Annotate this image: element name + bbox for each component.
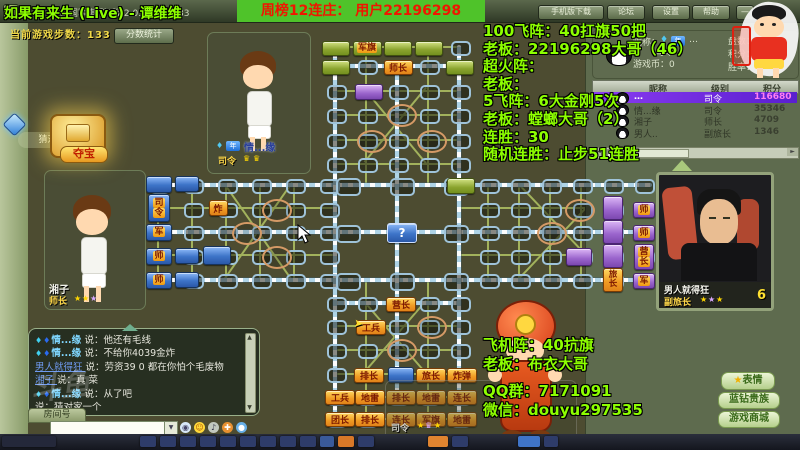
scroll-down-icon[interactable]: ▼ <box>246 404 253 412</box>
taskbar-item[interactable] <box>180 436 196 447</box>
medal-icon: ★ <box>434 421 441 430</box>
stats-line: 老板： <box>483 76 692 94</box>
help-button[interactable]: 帮助 <box>692 5 730 20</box>
game-mall-button[interactable]: 游戏商城 <box>718 411 780 428</box>
stats-line: 老板：22196298大哥（46） <box>483 41 692 59</box>
campsite <box>417 130 447 153</box>
board-station <box>511 250 531 265</box>
board-station <box>480 274 500 289</box>
board-station <box>480 203 500 218</box>
board-station <box>573 179 593 194</box>
gem-icon: ♦ <box>35 336 42 345</box>
medal-icon: ♛ <box>425 421 432 430</box>
board-piece-hidden[interactable] <box>384 41 412 56</box>
left-player-avatar[interactable]: 湘子 师长 ★ ★ ★ <box>44 170 146 310</box>
settings-button[interactable]: 设置 <box>652 5 690 20</box>
gem-icon: ♦ <box>43 349 50 358</box>
scroll-up-icon[interactable]: ▲ <box>246 334 253 342</box>
mobile-download-button[interactable]: 手机版下载 <box>538 5 604 20</box>
chat-message: ♦♦情...缘 说：不给你4039金炸 <box>35 347 245 360</box>
weekly-champion-banner: 周榜12连庄： 用户22196298 <box>237 0 485 22</box>
stats-line: 随机连胜：止步51连胜 <box>483 146 692 164</box>
board-station <box>327 297 347 312</box>
right-player-rank: 副旅长 <box>664 295 691 308</box>
campsite <box>417 316 447 339</box>
board-station <box>420 85 440 100</box>
campsite <box>232 222 262 245</box>
board-piece-师长[interactable]: 师长 <box>384 60 413 75</box>
board-piece-排长[interactable]: 排长 <box>355 412 385 427</box>
board-station <box>389 158 409 173</box>
board-piece-军[interactable]: 军 <box>146 224 172 241</box>
board-station <box>542 274 562 289</box>
medal-icon: ★ <box>90 294 97 303</box>
taskbar-item[interactable] <box>160 436 176 447</box>
board-station <box>218 179 238 194</box>
board-station <box>184 203 204 218</box>
taskbar-item[interactable] <box>140 436 156 447</box>
board-piece-团长[interactable]: 团长 <box>325 412 355 427</box>
gem-icon: ♦ <box>35 349 42 358</box>
douyu-watermark: 斗鱼 <box>28 359 92 409</box>
taskbar-start[interactable] <box>2 436 56 447</box>
streamer-eye-right <box>723 217 730 219</box>
board-station <box>252 179 272 194</box>
promo-line: 老板：布衣大哥 <box>483 355 643 374</box>
stream-stats-overlay: 100飞阵：40扛旗50把 老板：22196298大哥（46） 超火阵： 老板：… <box>483 23 692 164</box>
board-piece-工兵[interactable]: 工兵 <box>325 390 355 405</box>
mascot-emblem <box>515 314 536 335</box>
board-station <box>327 320 347 335</box>
taskbar-item[interactable] <box>200 436 216 447</box>
treasure-button[interactable]: 夺宝 <box>60 146 108 163</box>
board-station <box>444 225 469 243</box>
board-station <box>420 344 440 359</box>
board-piece-地雷[interactable]: 地雷 <box>355 390 385 405</box>
board-piece-hidden[interactable] <box>175 176 199 192</box>
tools-icon[interactable]: ✚ <box>222 422 233 433</box>
avatar-face <box>243 65 273 89</box>
stream-promo-overlay: 飞机阵：40抗旗 老板：布衣大哥 QQ群：7171091 微信：douyu297… <box>483 336 643 420</box>
taskbar-item[interactable] <box>320 436 334 447</box>
history-icon[interactable]: ◉ <box>180 422 191 433</box>
board-piece-旅长[interactable]: 旅长 <box>603 268 623 292</box>
board-station <box>451 297 471 312</box>
board-station <box>327 85 347 100</box>
board-station <box>327 344 347 359</box>
board-piece-hidden[interactable] <box>322 41 350 56</box>
board-station <box>451 41 471 56</box>
mouse-cursor <box>297 224 311 244</box>
taskbar-item[interactable] <box>544 436 558 447</box>
chat-input[interactable] <box>50 421 166 435</box>
board-station <box>480 226 500 241</box>
board-station <box>451 344 471 359</box>
board-piece-hidden[interactable] <box>175 248 199 264</box>
left-player-rank: 师长 <box>49 294 67 307</box>
board-station <box>511 226 531 241</box>
board-piece-师[interactable]: 师 <box>146 248 172 265</box>
sticker-eye <box>760 23 764 26</box>
board-piece-营长[interactable]: 营长 <box>634 244 654 270</box>
board-piece-hidden[interactable] <box>603 220 623 244</box>
board-station <box>184 226 204 241</box>
board-station <box>451 109 471 124</box>
emotion-button-label: 表情 <box>742 375 762 386</box>
taskbar-item[interactable] <box>260 436 276 447</box>
board-station <box>389 320 409 335</box>
board-station <box>420 297 440 312</box>
title-bar: 四国军棋(阵)版 2.0.9 Build033 如果有来生 (Live) - 谭… <box>0 0 800 23</box>
stats-line: 超火阵： <box>483 58 692 76</box>
sticker-eye <box>772 23 776 26</box>
stats-line: 5飞阵：6大金刚5次 <box>483 93 692 111</box>
taskbar-item[interactable] <box>300 436 316 447</box>
board-station <box>511 274 531 289</box>
board-station <box>451 158 471 173</box>
campsite <box>262 199 292 222</box>
taskbar-item[interactable] <box>240 436 256 447</box>
board-piece-hidden[interactable] <box>355 84 383 100</box>
shinchan-sticker <box>730 0 800 80</box>
board-station <box>320 203 340 218</box>
medal-icon: ★ <box>700 295 707 304</box>
gem-icon: ♦ <box>43 336 50 345</box>
taskbar-item[interactable] <box>452 436 468 447</box>
board-piece-炸[interactable]: 炸 <box>209 200 228 216</box>
taskbar-item[interactable] <box>280 436 296 447</box>
chat-message: ♦♦情...缘 说：他还有毛线 <box>35 334 245 347</box>
board-station <box>451 134 471 149</box>
board-station <box>542 179 562 194</box>
score-stats-button[interactable]: 分数统计 <box>114 28 174 44</box>
scroll-right-icon[interactable]: ► <box>787 148 798 156</box>
board-station <box>420 158 440 173</box>
board-piece-hidden[interactable] <box>415 41 443 56</box>
board-station <box>390 178 415 196</box>
board-station <box>480 179 500 194</box>
dart-marker-icon: ➤ <box>353 316 364 330</box>
avatar-face <box>76 209 108 235</box>
red-stamp <box>732 26 751 66</box>
coin-badge: 6 <box>757 288 766 303</box>
webcam-name-strip: 男人就得狂 副旅长 ★ ★ ★ 6 <box>659 282 771 308</box>
medal-icon: ★ <box>82 294 89 303</box>
board-piece-hidden[interactable] <box>446 60 474 75</box>
promo-line: 飞机阵：40抗旗 <box>483 336 643 355</box>
streamer-eye-left <box>709 217 716 219</box>
campsite <box>537 222 567 245</box>
taskbar-item[interactable] <box>518 436 540 447</box>
board-station <box>389 85 409 100</box>
board-piece-军[interactable]: 军 <box>633 273 655 289</box>
board-station <box>604 179 624 194</box>
taskbar-item[interactable] <box>220 436 236 447</box>
board-station <box>451 85 471 100</box>
sticker-leg <box>757 68 763 78</box>
board-station <box>420 109 440 124</box>
chat-scrollbar[interactable]: ▲ ▼ <box>245 333 256 413</box>
board-piece-司令[interactable]: 司令 <box>148 194 170 222</box>
row-rank: 副旅长 <box>704 127 731 140</box>
medal-icon: ★ <box>417 421 424 430</box>
board-station <box>358 109 378 124</box>
campsite <box>387 339 417 362</box>
board-station <box>451 320 471 335</box>
stats-line: 连胜：30 <box>483 129 692 147</box>
medal-icon: ★ <box>74 294 81 303</box>
board-piece-营长[interactable]: 营长 <box>386 297 416 312</box>
board-station <box>336 225 361 243</box>
row-score: 1346 <box>754 127 779 137</box>
board-piece-排长[interactable]: 排长 <box>354 368 384 383</box>
blue-diamond-button[interactable]: 蓝钻贵族 <box>718 392 780 409</box>
board-station <box>389 134 409 149</box>
promo-line: QQ群：7171091 <box>483 382 643 401</box>
top-player-name: 情...缘 <box>244 139 275 154</box>
board-station <box>336 178 361 196</box>
game-window: 司令军师师炸?军旗师长旅长师师营长军营长工兵排长旅长炸弹工兵地雷排长地雷连长团长… <box>0 0 800 450</box>
stream-title-overlay: 如果有来生 (Live) - 谭维维 <box>4 3 182 23</box>
board-piece-hidden[interactable] <box>603 244 623 268</box>
board-piece-师[interactable]: 师 <box>146 272 172 289</box>
board-piece-hidden[interactable] <box>175 272 199 288</box>
top-player-rank: 司令 <box>218 154 236 167</box>
board-station <box>358 297 378 312</box>
penguin-chat-icon[interactable]: ● <box>236 422 247 433</box>
board-station <box>327 368 347 383</box>
campsite <box>387 104 417 127</box>
streamer-face <box>700 199 738 245</box>
board-station <box>252 274 272 289</box>
board-piece-师[interactable]: 师 <box>633 202 655 218</box>
year-badge: 年 <box>226 141 240 151</box>
game-steps-counter: 当前游戏步数：133 <box>10 26 111 41</box>
board-piece-师[interactable]: 师 <box>633 225 655 241</box>
board-station <box>320 250 340 265</box>
board-piece-hidden[interactable] <box>203 246 231 265</box>
sticker-face <box>754 16 784 38</box>
chat-message-text: 说：不给你4039金炸 <box>84 348 175 359</box>
board-station <box>573 274 593 289</box>
board-piece-hidden[interactable] <box>146 176 172 193</box>
board-station <box>480 250 500 265</box>
board-piece-hidden[interactable] <box>566 248 592 266</box>
board-piece-hidden[interactable] <box>447 178 475 194</box>
row-score: 116680 <box>754 92 792 102</box>
board-piece-?[interactable]: ? <box>387 223 417 243</box>
row-score: 4709 <box>754 115 779 125</box>
avatar-tank-top <box>81 237 107 275</box>
board-station <box>327 158 347 173</box>
forum-button[interactable]: 论坛 <box>607 5 645 20</box>
board-station <box>327 134 347 149</box>
board-station <box>218 274 238 289</box>
campsite <box>262 246 292 269</box>
medal-icon: ★ <box>708 295 715 304</box>
stats-line: 100飞阵：40扛旗50把 <box>483 23 692 41</box>
medal-icon: ★ <box>716 295 723 304</box>
campsite <box>565 199 595 222</box>
emoji-icon[interactable]: ☺ <box>194 422 205 433</box>
medal-icon: ♛ <box>253 154 260 163</box>
board-station <box>635 179 655 194</box>
diamond-badge-icon: ♦ <box>216 141 223 150</box>
chat-resize-handle[interactable] <box>122 324 138 331</box>
campsite <box>357 130 387 153</box>
board-station <box>286 179 306 194</box>
taskbar-item[interactable] <box>358 436 374 447</box>
board-piece-hidden[interactable] <box>322 60 350 75</box>
board-station <box>286 274 306 289</box>
promo-line: 微信：douyu297535 <box>483 401 643 420</box>
avatar-tank-top <box>247 91 272 127</box>
board-station <box>511 203 531 218</box>
bottom-player-rank: 司令 <box>391 421 409 434</box>
board-station <box>542 203 562 218</box>
chat-message-text: 说：劳资39 0 都在你怕个毛废物 <box>86 362 224 373</box>
board-station <box>573 226 593 241</box>
board-station <box>358 158 378 173</box>
emotion-button[interactable]: ★表情 <box>721 372 775 390</box>
sound-icon[interactable]: ♪ <box>208 422 219 433</box>
board-station <box>358 344 378 359</box>
sticker-shirt <box>751 37 787 61</box>
board-station <box>336 273 361 291</box>
webcam-frame: 男人就得狂 副旅长 ★ ★ ★ 6 <box>656 172 774 311</box>
taskbar <box>0 434 800 450</box>
stats-line: 老板：螳螂大哥（2） <box>483 111 692 129</box>
chat-sender-name[interactable]: 情...缘 <box>51 348 84 359</box>
sticker-leg <box>773 68 779 78</box>
board-piece-hidden[interactable] <box>603 196 623 220</box>
board-station <box>444 273 469 291</box>
taskbar-item[interactable] <box>428 436 448 447</box>
streamer-shirt <box>681 243 757 281</box>
board-station <box>327 109 347 124</box>
top-player-avatar[interactable]: ♦ 年 情...缘 司令 ♛ ♛ <box>207 32 311 174</box>
medal-icon: ♛ <box>243 154 250 163</box>
board-piece-军旗[interactable]: 军旗 <box>353 41 382 56</box>
board-station <box>390 273 415 291</box>
taskbar-item[interactable] <box>338 436 354 447</box>
board-station <box>358 60 378 75</box>
chat-message-text: 说：他还有毛线 <box>84 335 151 346</box>
row-score: 35346 <box>754 104 785 114</box>
board-station <box>420 60 440 75</box>
board-station <box>542 250 562 265</box>
board-station <box>511 179 531 194</box>
chat-sender-name[interactable]: 情...缘 <box>51 335 84 346</box>
